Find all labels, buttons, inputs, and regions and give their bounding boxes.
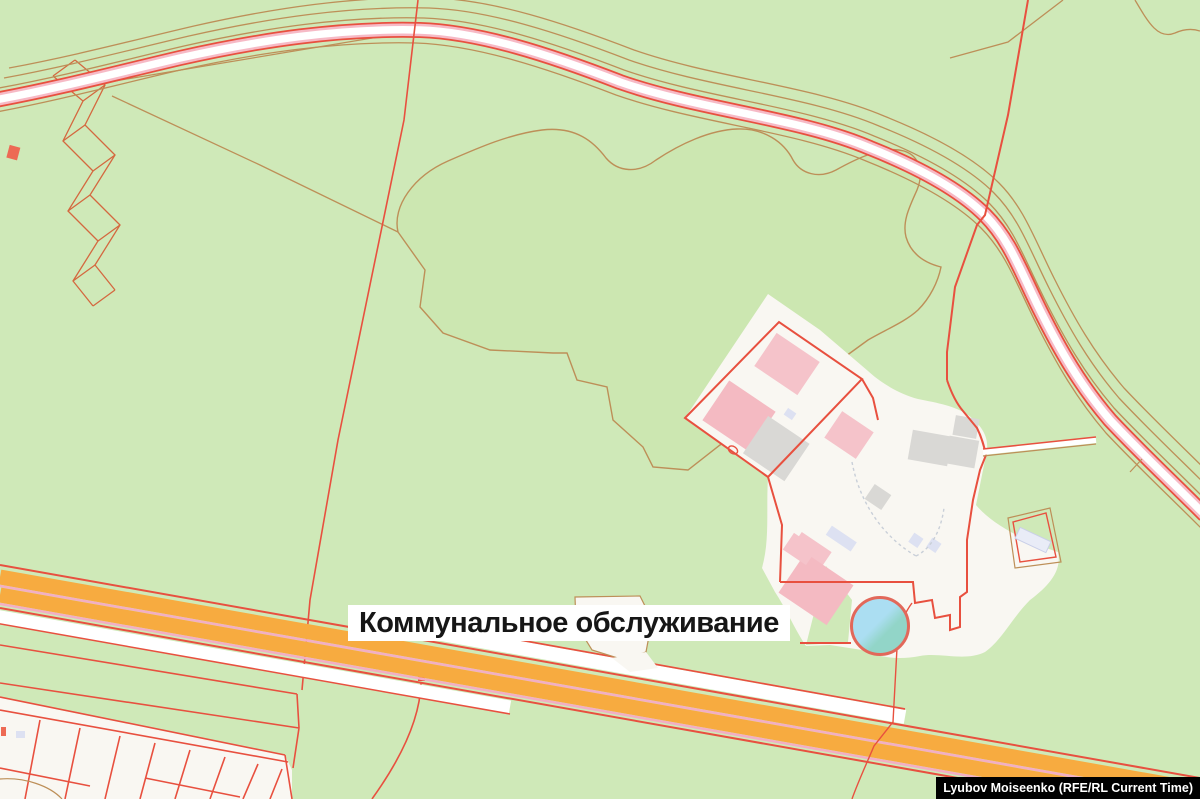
map-viewport[interactable]: Коммунальное обслуживание Lyubov Moiseen… [0, 0, 1200, 799]
base-map[interactable] [0, 0, 1200, 799]
credit-badge: Lyubov Moiseenko (RFE/RL Current Time) [936, 777, 1200, 799]
poi-marker-circle[interactable] [852, 598, 909, 655]
poi-label[interactable]: Коммунальное обслуживание [348, 605, 790, 641]
